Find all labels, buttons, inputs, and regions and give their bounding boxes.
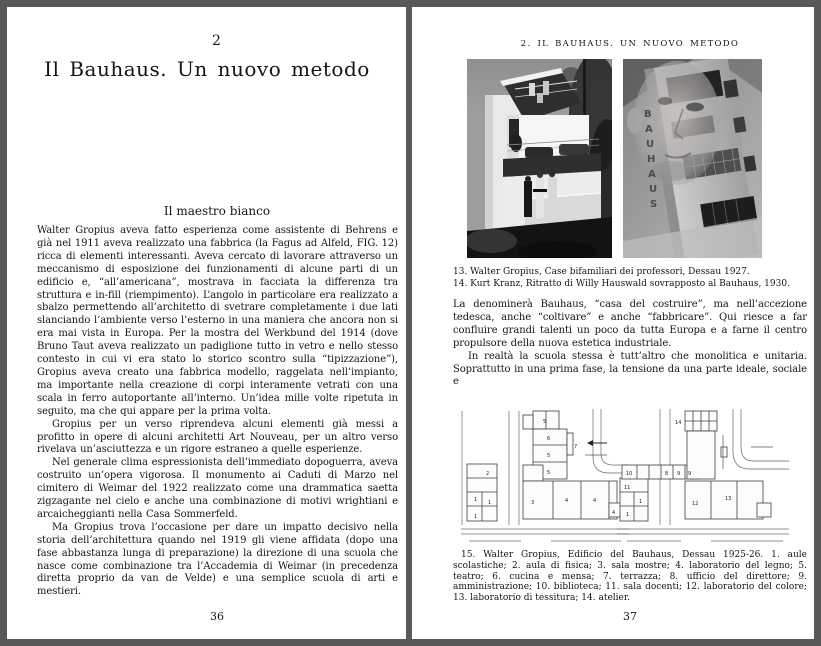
body-text-left: Walter Gropius aveva fatto esperienza co… [37, 225, 398, 599]
paragraph: Walter Gropius aveva fatto esperienza co… [37, 225, 398, 419]
plan-room-number: 2 [486, 471, 489, 477]
book-spread: 2 Il Bauhaus. Un nuovo metodo Il maestro… [0, 0, 821, 646]
eye [658, 97, 672, 105]
plan-room-number: 1 [474, 497, 477, 503]
photo-professors-house [467, 59, 612, 258]
paragraph: La denominerà Bauhaus, “casa del costrui… [453, 299, 807, 351]
plan-room-number: 13 [725, 496, 731, 502]
hedge [467, 114, 487, 234]
plan-room-number: 10 [626, 471, 632, 477]
paragraph: In realtà la scuola stessa è tutt’altro … [453, 351, 807, 390]
bauhaus-sign-letter: H [647, 154, 655, 165]
plan-room-number: 1 [488, 500, 491, 506]
plan-room-number: 9 [677, 471, 680, 477]
plan-room-number: 1 [639, 499, 642, 505]
paragraph: Ma Gropius trova l’occasione per dare un… [37, 522, 398, 599]
plan-room-number: 11 [624, 485, 630, 491]
figure-caption-13: 13. Walter Gropius, Case bifamiliari dei… [453, 267, 807, 279]
plan-room-number: 5 [547, 470, 550, 476]
plan-room-number: 9 [688, 471, 691, 477]
paragraph: Nel generale clima espressionista dell’i… [37, 457, 398, 522]
plan-room-number: 4 [565, 498, 568, 504]
body-text-right: La denominerà Bauhaus, “casa del costrui… [453, 299, 807, 389]
chapter-number: 2 [37, 33, 397, 49]
bauhaus-sign-letter: A [645, 124, 653, 135]
window [733, 117, 746, 134]
plan-room-number: 14 [675, 420, 681, 426]
running-header: 2. IL BAUHAUS. UN NUOVO METODO [453, 39, 807, 49]
plan-room-number: 8 [665, 471, 668, 477]
ground-patch [467, 229, 517, 253]
figure-caption-14: 14. Kurt Kranz, Ritratto di Willy Hauswa… [453, 279, 807, 291]
bauhaus-sign-letter: S [650, 199, 657, 210]
photo-kranz-portrait: B A U H A U S [623, 59, 762, 258]
plan-room-number: 4 [612, 510, 615, 516]
plan-room-number: 5 [547, 453, 550, 459]
bauhaus-sign-letter: B [644, 109, 652, 120]
plan-room-number: 1 [474, 514, 477, 520]
plan-room-number: 12 [692, 501, 698, 507]
plan-room-number: 1 [626, 512, 629, 518]
people [524, 171, 557, 219]
figure-captions: 13. Walter Gropius, Case bifamiliari dei… [453, 267, 807, 290]
page-right: 2. IL BAUHAUS. UN NUOVO METODO [412, 7, 814, 639]
chapter-title: Il Bauhaus. Un nuovo metodo [17, 57, 397, 81]
plan-first-floor: 14 10 8 9 9 11 1 1 12 13 [617, 409, 789, 541]
bauhaus-floor-plans: 2 1 1 1 5 6 5 5 7 3 4 4 4 [453, 407, 809, 547]
window [743, 155, 756, 172]
eye [686, 103, 704, 112]
bauhaus-sign-letter: A [648, 169, 656, 180]
plan-room-number: 4 [593, 498, 596, 504]
bauhaus-sign-letter: U [646, 139, 654, 150]
north-arrow [587, 440, 593, 446]
plan-ground-floor: 2 1 1 1 5 6 5 5 7 3 4 4 4 [461, 409, 629, 541]
figure-caption-15: 15. Walter Gropius, Edificio del Bauhaus… [453, 550, 807, 604]
paragraph: Gropius per un verso riprendeva alcuni e… [37, 419, 398, 458]
window [723, 79, 738, 98]
bauhaus-sign-letter: U [649, 184, 657, 195]
plan-room-number: 5 [543, 419, 546, 425]
page-number-right: 37 [453, 610, 807, 623]
chin-shadow [651, 161, 691, 181]
page-number-left: 36 [37, 610, 397, 623]
section-heading: Il maestro bianco [37, 204, 397, 218]
plan-room-number: 3 [531, 500, 534, 506]
plan-room-number: 6 [547, 436, 550, 442]
ear [627, 108, 643, 134]
plan-room-number: 7 [574, 444, 577, 450]
page-left: 2 Il Bauhaus. Un nuovo metodo Il maestro… [7, 7, 406, 639]
